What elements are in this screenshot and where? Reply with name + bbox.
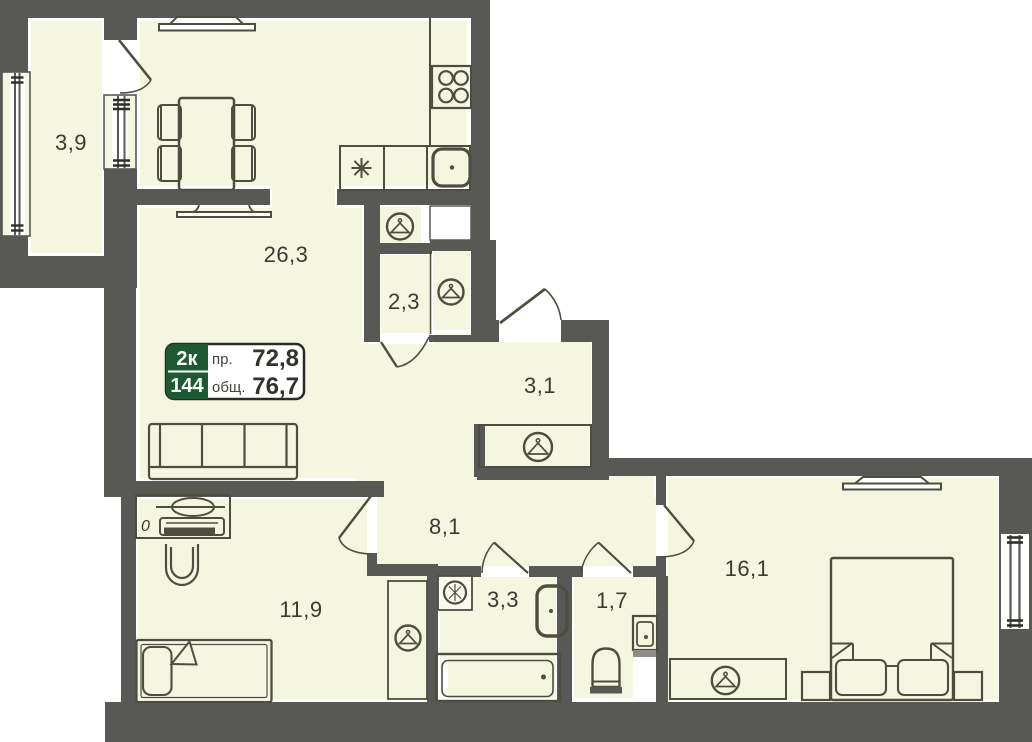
- svg-text:2,3: 2,3: [388, 289, 420, 314]
- svg-text:3,3: 3,3: [487, 587, 519, 612]
- svg-text:2к: 2к: [176, 348, 198, 370]
- svg-text:72,8: 72,8: [252, 345, 299, 372]
- svg-text:16,1: 16,1: [725, 556, 770, 581]
- svg-text:76,7: 76,7: [252, 373, 299, 400]
- svg-text:144: 144: [170, 375, 204, 397]
- svg-text:3,1: 3,1: [524, 373, 556, 398]
- svg-text:0: 0: [141, 518, 150, 535]
- svg-text:26,3: 26,3: [264, 242, 309, 267]
- svg-text:3,9: 3,9: [55, 130, 87, 155]
- svg-text:пр.: пр.: [212, 351, 233, 368]
- svg-text:11,9: 11,9: [279, 597, 322, 622]
- svg-text:8,1: 8,1: [429, 514, 461, 539]
- svg-text:общ.: общ.: [212, 379, 245, 396]
- svg-text:1,7: 1,7: [596, 588, 628, 613]
